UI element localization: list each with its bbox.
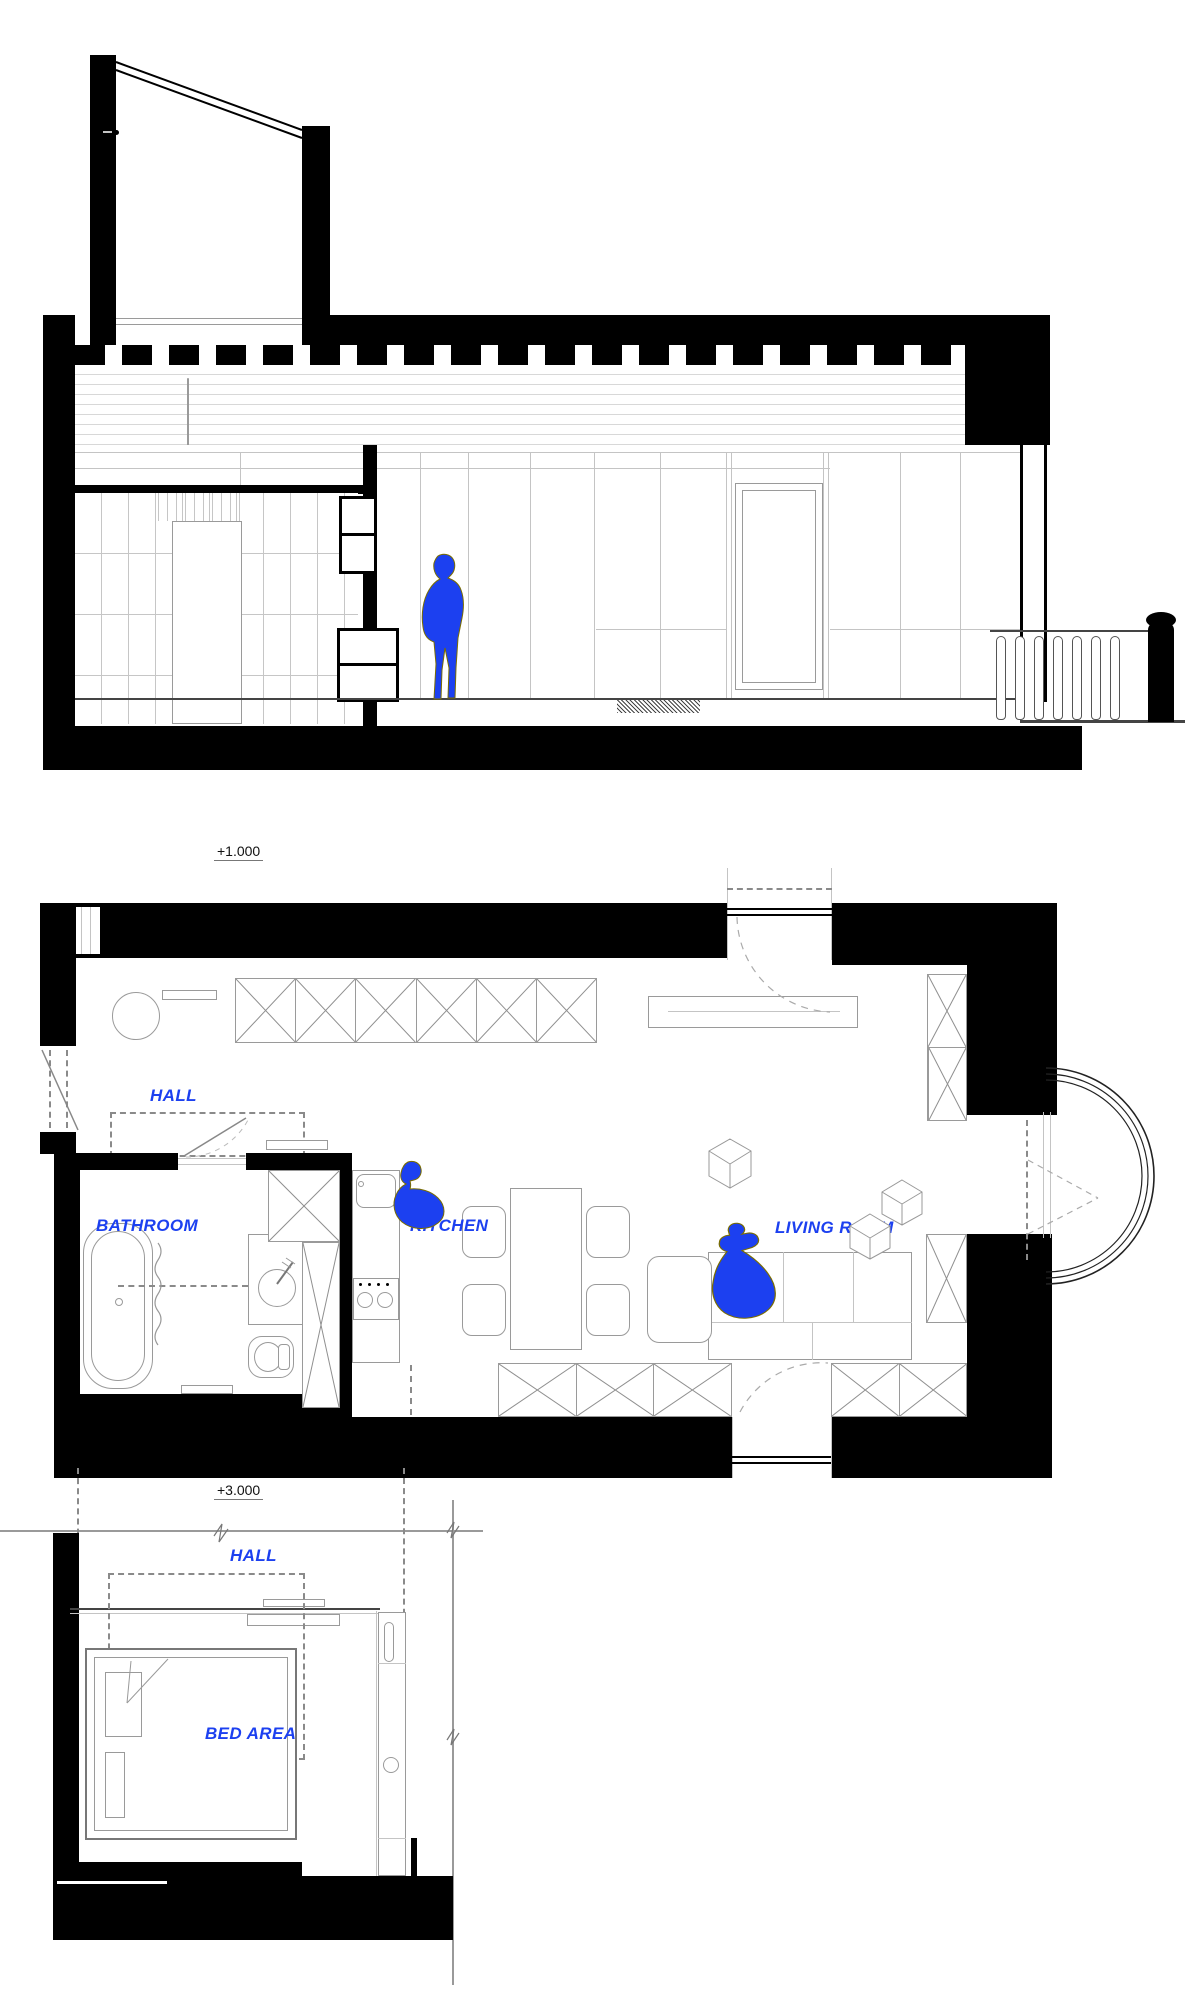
shower-tray bbox=[268, 1170, 340, 1242]
bathroom-bench bbox=[181, 1385, 233, 1394]
shelf-x-box bbox=[928, 1048, 966, 1120]
wall-stub bbox=[411, 1838, 417, 1876]
shelf-x-box bbox=[928, 975, 966, 1048]
sofa-ottoman bbox=[647, 1256, 712, 1343]
top-wall-left bbox=[51, 903, 727, 958]
panel-x bbox=[303, 1243, 339, 1407]
console-cabinet bbox=[648, 996, 858, 1028]
break-mark bbox=[214, 1524, 228, 1542]
bottom-wall-band bbox=[53, 1876, 453, 1940]
door-frame-line bbox=[726, 452, 727, 700]
kitchen-sink bbox=[356, 1174, 396, 1208]
wardrobe-x-box bbox=[416, 979, 476, 1042]
right-solid-mass bbox=[967, 965, 1057, 1115]
cube-stool bbox=[709, 1139, 751, 1188]
bathroom-top-wall bbox=[76, 1153, 178, 1170]
window-mullion bbox=[81, 907, 82, 954]
roof-slab bbox=[330, 315, 965, 345]
wall-window-slot bbox=[74, 907, 100, 954]
floor-line bbox=[75, 698, 1020, 700]
bottom-wall-mid bbox=[352, 1417, 732, 1478]
room-label-bed-area: BED AREA bbox=[205, 1724, 296, 1744]
niche-divider bbox=[339, 533, 377, 536]
wall-panel-joint bbox=[420, 452, 421, 700]
balcony-door-dash bbox=[1028, 1160, 1098, 1198]
top-wall-right bbox=[832, 903, 1057, 965]
right-wall-lower bbox=[967, 1234, 1052, 1424]
closet-door-panel bbox=[172, 521, 242, 724]
wardrobe-row-bottom-right bbox=[831, 1363, 967, 1417]
dormer-left-wall bbox=[90, 55, 116, 345]
balcony-balusters bbox=[996, 636, 1146, 720]
ground-line bbox=[0, 1530, 483, 1532]
stove-knob bbox=[359, 1283, 362, 1286]
room-label-hall-mezzanine: HALL bbox=[230, 1546, 277, 1566]
room-label-hall: HALL bbox=[150, 1086, 197, 1106]
wardrobe-row-bottom-left bbox=[498, 1363, 732, 1417]
level-label-3000: +3.000 bbox=[214, 1482, 263, 1500]
bathroom-door-threshold bbox=[178, 1164, 246, 1165]
dining-chair bbox=[586, 1284, 630, 1336]
baluster bbox=[996, 636, 1006, 720]
shower-curtain-wave bbox=[155, 1243, 161, 1345]
baluster bbox=[1091, 636, 1101, 720]
wardrobe-handle-slot bbox=[384, 1622, 394, 1662]
baluster bbox=[1072, 636, 1082, 720]
bathtub-inner bbox=[91, 1231, 145, 1381]
wall-panel-joint bbox=[900, 452, 901, 700]
stove-knob bbox=[368, 1283, 371, 1286]
left-wall bbox=[53, 1533, 79, 1876]
wardrobe-x-box bbox=[236, 979, 295, 1042]
wall-panel-joint bbox=[530, 452, 531, 700]
entry-door-leaf bbox=[42, 1050, 78, 1130]
baluster bbox=[1110, 636, 1120, 720]
roof-slope-line bbox=[116, 62, 302, 130]
door-jamb-line bbox=[831, 1417, 832, 1478]
wall-joint-slit bbox=[57, 1881, 167, 1884]
baluster bbox=[1034, 636, 1044, 720]
pipe-line bbox=[187, 378, 189, 445]
roof-slope-line bbox=[116, 70, 302, 138]
stove-knob bbox=[386, 1283, 389, 1286]
dormer-floor-line bbox=[116, 324, 302, 325]
wardrobe-divider bbox=[378, 1838, 406, 1839]
stove-burner bbox=[377, 1292, 393, 1308]
washing-machine bbox=[112, 992, 160, 1040]
baluster bbox=[1053, 636, 1063, 720]
architectural-drawing-sheet: +1.000 bbox=[0, 0, 1200, 2000]
dormer-marker-dot bbox=[114, 130, 119, 135]
wall-panel-joint bbox=[960, 452, 961, 700]
panel-rail-line bbox=[596, 629, 726, 630]
room-edge-line bbox=[376, 1611, 377, 1876]
window-mullion bbox=[90, 907, 91, 954]
wardrobe-row-top bbox=[235, 978, 597, 1043]
left-wall-upper bbox=[40, 903, 76, 1046]
washbasin-bowl bbox=[258, 1269, 296, 1307]
room-label-bathroom: BATHROOM bbox=[96, 1216, 198, 1236]
bottom-inner-wall bbox=[79, 1862, 302, 1876]
sofa-cushion-line bbox=[783, 1252, 784, 1322]
soffit-line bbox=[75, 452, 1020, 453]
bathroom-axis-dash bbox=[118, 1285, 248, 1287]
tall-cupboard-door-inner bbox=[742, 490, 816, 683]
bathroom-tall-panel bbox=[302, 1242, 340, 1408]
dormer-right-wall bbox=[302, 126, 330, 345]
wardrobe-x-box bbox=[536, 979, 596, 1042]
balcony-glazing-line bbox=[1050, 1112, 1051, 1238]
cabinet-divider bbox=[337, 663, 399, 666]
left-wall-mid bbox=[40, 1132, 76, 1154]
counter-dash bbox=[410, 1365, 412, 1415]
wall-panel-joint bbox=[660, 452, 661, 700]
sofa-body bbox=[708, 1252, 912, 1360]
wardrobe-x-box bbox=[576, 1364, 654, 1416]
balcony-bay-arc bbox=[1046, 1080, 1142, 1272]
door-jamb-line bbox=[732, 1417, 733, 1478]
hall-shelf bbox=[266, 1140, 328, 1150]
dormer-marker-line bbox=[103, 131, 112, 133]
entry-shelf bbox=[162, 990, 217, 1000]
wardrobe-x-box bbox=[355, 979, 415, 1042]
wall-left-exterior bbox=[43, 315, 75, 770]
baluster bbox=[1015, 636, 1025, 720]
bed-pillow bbox=[105, 1752, 125, 1818]
dining-chair bbox=[462, 1284, 506, 1336]
bathtub-drain bbox=[115, 1298, 123, 1306]
stove-knob bbox=[377, 1283, 380, 1286]
wardrobe-x-box bbox=[653, 1364, 731, 1416]
shower-x bbox=[269, 1171, 339, 1241]
hall-boundary-dashed bbox=[110, 1112, 305, 1157]
wardrobe-x-box bbox=[832, 1364, 899, 1416]
door-leaf-line bbox=[727, 914, 832, 916]
brick-band bbox=[75, 365, 965, 445]
wardrobe-x-box bbox=[499, 1364, 576, 1416]
shelf-column-lower bbox=[926, 1234, 967, 1323]
ceiling-joist-band bbox=[75, 345, 965, 365]
balcony-bay-arc bbox=[1046, 1068, 1154, 1284]
console-inner-line bbox=[668, 1011, 840, 1012]
shelf-x-box bbox=[927, 1235, 966, 1322]
door-frame-line bbox=[731, 452, 732, 700]
wardrobe-divider bbox=[378, 1663, 406, 1664]
stove-burner bbox=[357, 1292, 373, 1308]
shelf-column-upper bbox=[927, 974, 967, 1121]
bathroom-door-threshold bbox=[178, 1158, 246, 1159]
bathroom-top-wall bbox=[246, 1153, 352, 1170]
bathroom-right-wall bbox=[340, 1153, 352, 1417]
standing-person-figure bbox=[422, 554, 463, 699]
balcony-bay-arc bbox=[1046, 1074, 1148, 1278]
wall-panel-joint bbox=[594, 452, 595, 700]
door-frame-line bbox=[828, 452, 829, 700]
dormer-floor-line bbox=[116, 318, 302, 319]
room-label-kitchen: KITCHEN bbox=[410, 1216, 488, 1236]
wardrobe-x-box bbox=[899, 1364, 967, 1416]
balcony-door-dash bbox=[1028, 1198, 1098, 1234]
door-leaf-line bbox=[727, 908, 832, 910]
bottom-wall-right bbox=[831, 1417, 1052, 1478]
wardrobe-knob bbox=[383, 1757, 399, 1773]
sofa-front-line bbox=[812, 1322, 813, 1360]
wall-panel-joint bbox=[468, 452, 469, 700]
door-recess-dash bbox=[727, 888, 832, 890]
dining-chair bbox=[586, 1206, 630, 1258]
newel-post bbox=[1148, 622, 1174, 722]
sink-faucet-base bbox=[358, 1181, 364, 1187]
door-leaf-line bbox=[732, 1456, 831, 1458]
floor-vent-grille bbox=[617, 700, 700, 713]
dining-table bbox=[510, 1188, 582, 1350]
foundation-base bbox=[43, 726, 1082, 770]
bottom-door-swing-arc bbox=[740, 1363, 828, 1412]
entry-threshold-dash bbox=[49, 1050, 51, 1128]
wardrobe-x-box bbox=[476, 979, 536, 1042]
closet-slat-band bbox=[158, 493, 240, 521]
door-frame-line bbox=[823, 452, 824, 700]
level-label-1000: +1.000 bbox=[214, 843, 263, 861]
bathroom-left-wall bbox=[54, 1154, 80, 1394]
wardrobe-x-box bbox=[295, 979, 355, 1042]
toilet-tank bbox=[278, 1344, 290, 1370]
soffit-step-line bbox=[240, 452, 241, 485]
door-leaf-line bbox=[732, 1462, 831, 1464]
sofa-seat-line bbox=[708, 1322, 912, 1323]
balcony-rail-line bbox=[990, 630, 1150, 632]
curtain-dash-line bbox=[1026, 1120, 1028, 1260]
soffit-line bbox=[75, 468, 830, 469]
entry-threshold-dash bbox=[66, 1050, 68, 1128]
sofa-cushion-line bbox=[853, 1252, 854, 1322]
balcony-glazing-line bbox=[1043, 1112, 1044, 1238]
room-label-living-room: LIVING ROOM bbox=[775, 1218, 894, 1238]
bed-pillow bbox=[105, 1672, 142, 1737]
